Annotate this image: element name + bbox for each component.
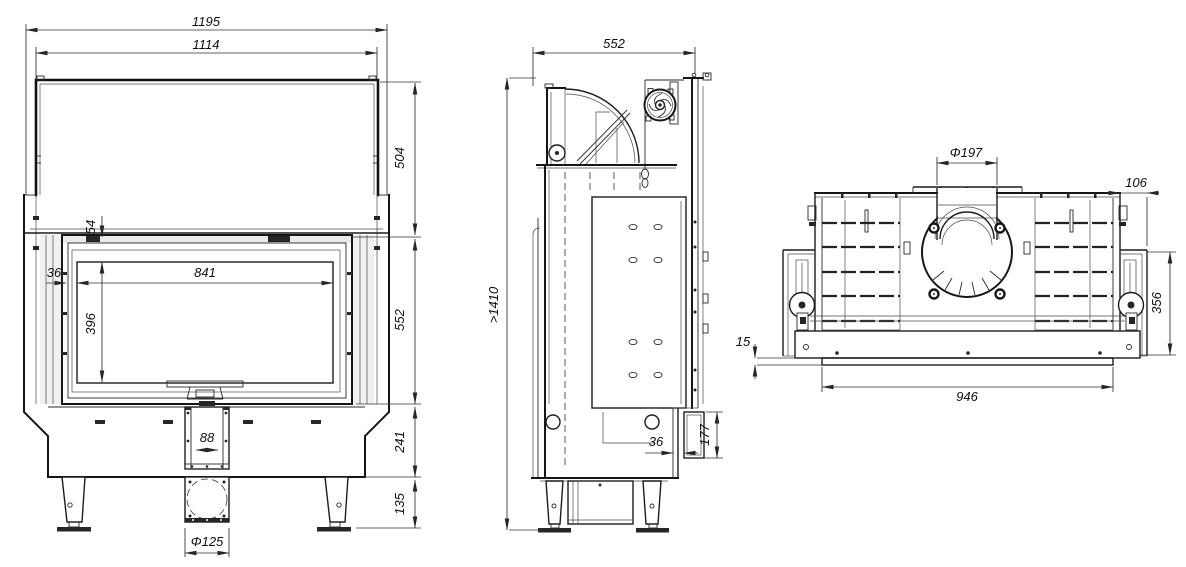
fireplace-technical-drawing: 1195 1114 504 552 241 135 54 396 36 841 … (0, 0, 1186, 567)
dim-front-leg-height: 135 (392, 492, 407, 514)
front-hood (36, 76, 378, 195)
top-view: Φ197 106 15 356 946 (736, 145, 1176, 404)
top-front-strip (795, 331, 1140, 365)
dim-side-total-height: >1410 (486, 286, 501, 323)
dim-front-height: 552 (392, 308, 407, 330)
dim-front-overall-width: 1195 (192, 14, 221, 29)
dim-top-flue-diameter: Φ197 (950, 145, 983, 160)
dim-front-glass-margin: 36 (47, 265, 62, 280)
side-firebox (532, 165, 704, 481)
front-air-inlet (185, 477, 229, 522)
side-door-mechanism (549, 80, 649, 188)
dim-front-base-height: 241 (392, 431, 407, 454)
dim-top-lip-offset: 15 (736, 334, 751, 349)
dim-front-hood-height: 504 (392, 147, 407, 169)
front-view: 1195 1114 504 552 241 135 54 396 36 841 … (24, 14, 421, 557)
drawing-canvas: 1195 1114 504 552 241 135 54 396 36 841 … (0, 0, 1186, 567)
side-fan (645, 82, 679, 124)
heat-shield-plate (592, 197, 686, 408)
dim-front-glass-width: 841 (194, 265, 216, 280)
dim-side-flange-depth: 36 (649, 434, 664, 449)
top-flue-flange (904, 188, 1030, 299)
dim-side-depth: 552 (603, 36, 625, 51)
dim-front-glass-height: 396 (83, 312, 98, 334)
dim-side-flange-height: 177 (697, 423, 712, 445)
dim-front-inlet-diameter: Φ125 (191, 534, 224, 549)
dim-top-depth: 356 (1149, 291, 1164, 313)
side-legs (538, 481, 669, 533)
top-pulleys (790, 293, 1144, 331)
dim-top-front-width: 946 (956, 389, 978, 404)
dim-front-lintel-drop: 54 (83, 220, 98, 234)
side-view: 552 >1410 36 177 (486, 36, 723, 533)
front-door (62, 235, 352, 406)
dim-front-top-width: 1114 (193, 37, 220, 52)
dim-top-side-overhang: 106 (1125, 175, 1147, 190)
dim-front-duct-width: 88 (200, 430, 215, 445)
